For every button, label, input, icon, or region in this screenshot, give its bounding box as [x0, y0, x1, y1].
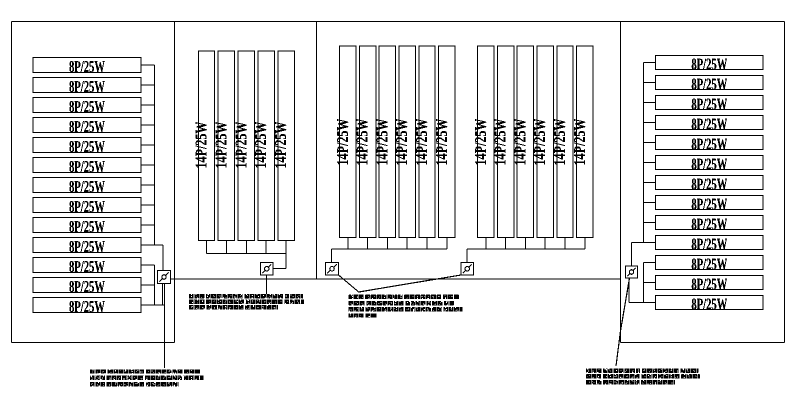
svg-text:8P/25W: 8P/25W: [691, 174, 727, 193]
svg-text:14P/25W: 14P/25W: [392, 118, 411, 165]
svg-text:14P/25W: 14P/25W: [530, 118, 549, 165]
svg-text:8P/25W: 8P/25W: [69, 257, 105, 276]
svg-text:14P/25W: 14P/25W: [550, 118, 569, 165]
svg-text:8P/25W: 8P/25W: [691, 94, 727, 113]
svg-text:8P/25W: 8P/25W: [691, 74, 727, 93]
svg-text:14P/25W: 14P/25W: [211, 121, 230, 168]
svg-text:8P/25W: 8P/25W: [69, 117, 105, 136]
svg-text:8P/25W: 8P/25W: [69, 77, 105, 96]
svg-text:8P/25W: 8P/25W: [69, 177, 105, 196]
svg-text:8P/25W: 8P/25W: [69, 157, 105, 176]
svg-text:14P/25W: 14P/25W: [412, 118, 431, 165]
svg-text:8P/25W: 8P/25W: [69, 297, 105, 316]
svg-text:14P/25W: 14P/25W: [271, 121, 290, 168]
svg-text:14P/25W: 14P/25W: [491, 118, 510, 165]
svg-text:8P/25W: 8P/25W: [691, 274, 727, 293]
svg-text:8P/25W: 8P/25W: [69, 217, 105, 236]
svg-text:14P/25W: 14P/25W: [471, 118, 490, 165]
svg-text:14P/25W: 14P/25W: [251, 121, 270, 168]
svg-text:14P/25W: 14P/25W: [333, 118, 352, 165]
svg-text:14P/25W: 14P/25W: [432, 118, 451, 165]
svg-text:8P/25W: 8P/25W: [691, 54, 727, 73]
svg-text:8P/25W: 8P/25W: [691, 214, 727, 233]
svg-text:8P/25W: 8P/25W: [691, 114, 727, 133]
svg-text:14P/25W: 14P/25W: [231, 121, 250, 168]
svg-text:14P/25W: 14P/25W: [372, 118, 391, 165]
svg-text:8P/25W: 8P/25W: [69, 197, 105, 216]
svg-text:8P/25W: 8P/25W: [69, 237, 105, 256]
svg-text:8P/25W: 8P/25W: [69, 57, 105, 76]
svg-text:14P/25W: 14P/25W: [192, 121, 211, 168]
svg-text:8P/25W: 8P/25W: [691, 134, 727, 153]
svg-text:8P/25W: 8P/25W: [69, 277, 105, 296]
svg-text:14P/25W: 14P/25W: [570, 118, 589, 165]
svg-text:8P/25W: 8P/25W: [69, 137, 105, 156]
svg-text:8P/25W: 8P/25W: [691, 194, 727, 213]
svg-text:8P/25W: 8P/25W: [691, 154, 727, 173]
svg-text:8P/25W: 8P/25W: [691, 294, 727, 313]
svg-text:8P/25W: 8P/25W: [691, 254, 727, 273]
svg-text:8P/25W: 8P/25W: [69, 97, 105, 116]
svg-text:14P/25W: 14P/25W: [510, 118, 529, 165]
svg-text:8P/25W: 8P/25W: [691, 234, 727, 253]
svg-text:14P/25W: 14P/25W: [353, 118, 372, 165]
